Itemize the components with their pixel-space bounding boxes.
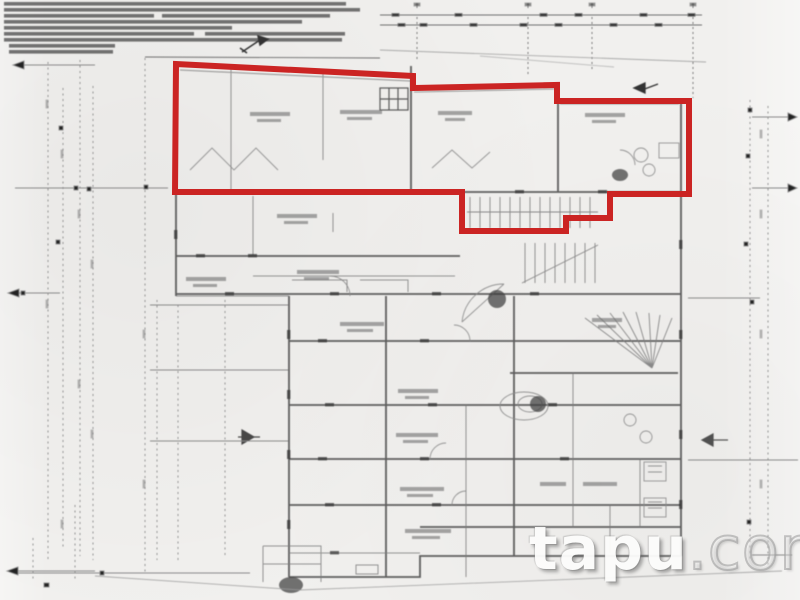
floor-plan-scan — [0, 0, 800, 600]
section-arrow-icon — [238, 430, 260, 444]
fixture-blobs — [279, 169, 628, 593]
red-unit-outline — [175, 64, 689, 231]
sheet-edge-lines — [95, 50, 782, 590]
building-walls — [176, 66, 681, 582]
direction-arrow-icon — [634, 83, 658, 93]
room-label-marks — [186, 110, 625, 539]
scanned-floor-plan-page: tapu.com — [0, 0, 800, 600]
right-dimension-lines — [688, 100, 798, 566]
section-arrow-right-icon — [702, 434, 728, 446]
room-detail-lines — [190, 143, 679, 517]
notes-block — [4, 2, 360, 54]
left-dimension-lines — [7, 58, 288, 587]
